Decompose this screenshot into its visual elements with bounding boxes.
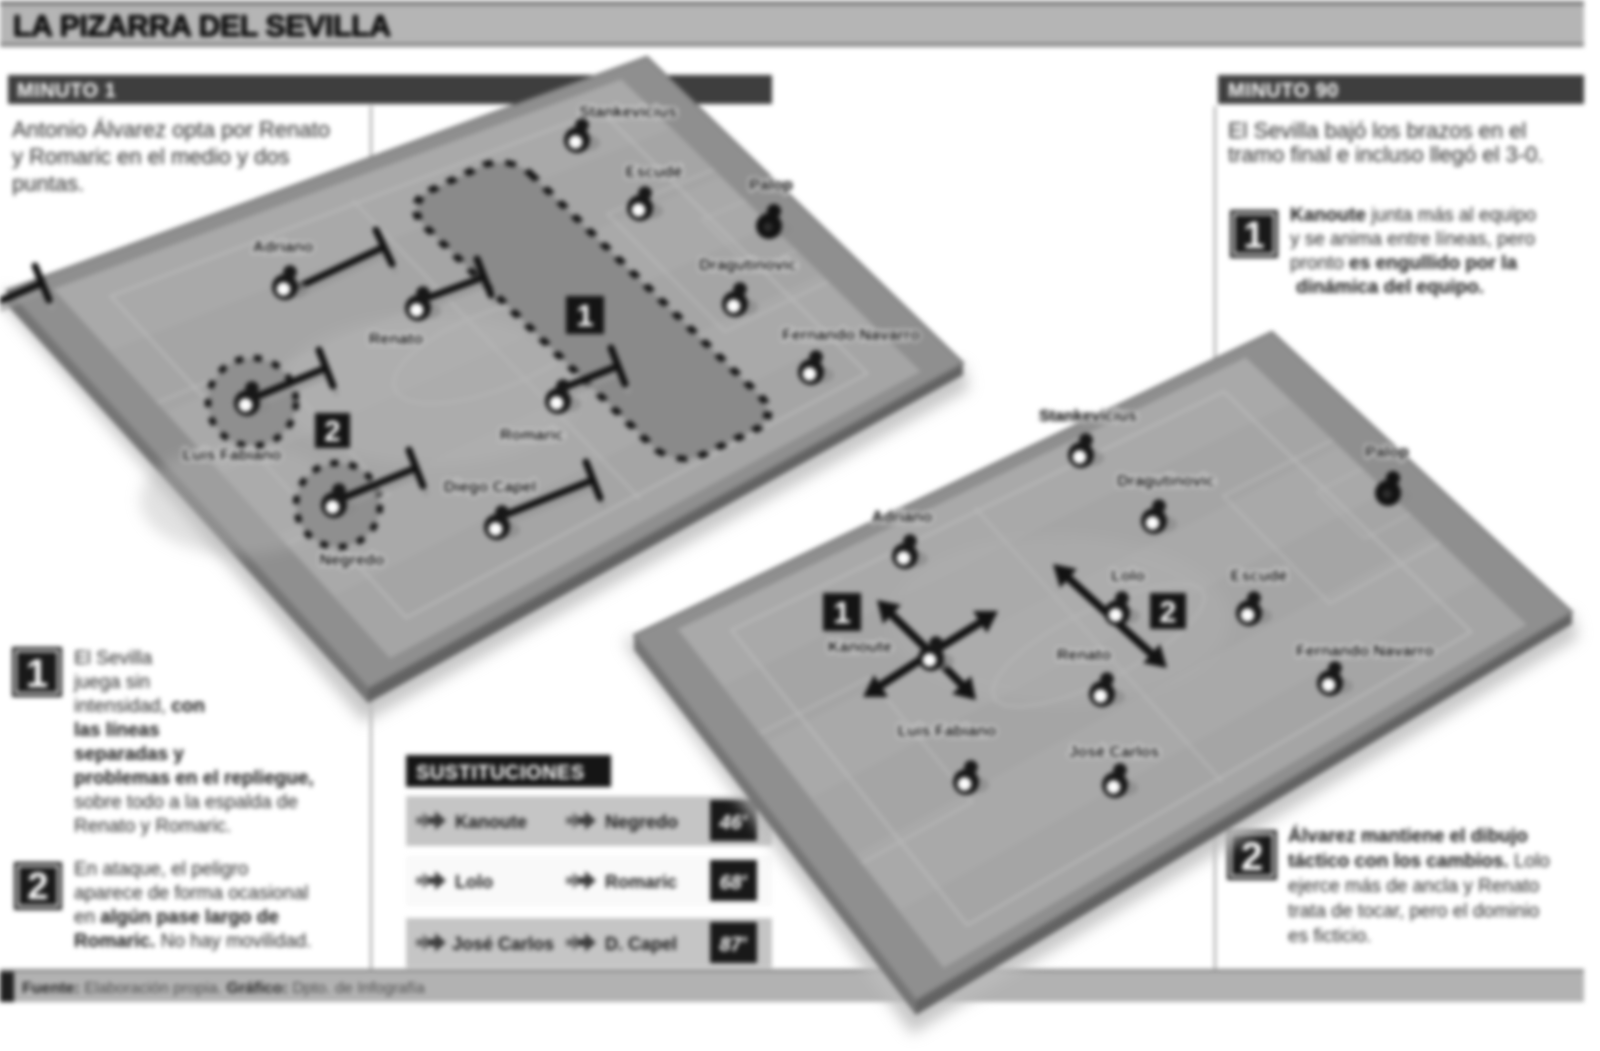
svg-text:68': 68' (719, 872, 747, 894)
svg-text:Adriano: Adriano (872, 509, 933, 526)
svg-text:87': 87' (719, 934, 747, 956)
svg-text:Kanoute junta más al equipo: Kanoute junta más al equipo (1290, 205, 1536, 226)
svg-text:En ataque, el peligro: En ataque, el peligro (74, 859, 248, 880)
svg-text:Negredo: Negredo (605, 812, 678, 832)
svg-text:Dragutinovic: Dragutinovic (1117, 473, 1215, 490)
svg-text:1: 1 (26, 652, 48, 696)
svg-text:Dragutinovic: Dragutinovic (699, 257, 797, 274)
svg-text:MINUTO 90: MINUTO 90 (1228, 80, 1339, 102)
svg-text:Kanoute: Kanoute (455, 812, 527, 832)
svg-text:José Carlos: José Carlos (452, 934, 554, 954)
svg-text:Fernando Navarro: Fernando Navarro (1296, 643, 1434, 660)
svg-text:Romaric: Romaric (500, 427, 564, 444)
svg-text:2: 2 (324, 416, 340, 448)
svg-text:en algún pase largo de: en algún pase largo de (74, 907, 279, 928)
svg-text:dinámica del equipo.: dinámica del equipo. (1296, 277, 1484, 298)
svg-text:es ficticio.: es ficticio. (1288, 926, 1371, 947)
svg-text:problemas en el repliegue,: problemas en el repliegue, (74, 768, 314, 789)
svg-text:Adriano: Adriano (253, 239, 314, 256)
svg-text:46': 46' (718, 812, 747, 834)
svg-text:Lolo: Lolo (1111, 568, 1145, 585)
svg-text:Palop: Palop (1365, 444, 1409, 461)
svg-text:tramo final e incluso llegó el: tramo final e incluso llegó el 3-0. (1228, 142, 1544, 167)
svg-text:sobre todo a la espalda de: sobre todo a la espalda de (74, 792, 298, 813)
svg-text:1: 1 (1243, 215, 1264, 257)
svg-text:ejerce más de ancla y Renato: ejerce más de ancla y Renato (1288, 876, 1539, 897)
svg-text:2: 2 (1160, 596, 1177, 629)
svg-text:Diego Capel: Diego Capel (444, 479, 536, 496)
svg-text:SUSTITUCIONES: SUSTITUCIONES (416, 762, 585, 784)
svg-text:Romaric: Romaric (605, 872, 677, 892)
svg-text:MINUTO 1: MINUTO 1 (17, 80, 116, 102)
svg-text:LA PIZARRA DEL SEVILLA: LA PIZARRA DEL SEVILLA (13, 10, 391, 43)
svg-text:Álvarez mantiene el dibujo: Álvarez mantiene el dibujo (1288, 825, 1528, 847)
svg-text:Lolo: Lolo (455, 872, 493, 892)
svg-text:juega sin: juega sin (73, 672, 150, 693)
svg-text:El Sevilla: El Sevilla (74, 648, 153, 669)
svg-text:pronto es engullido por la: pronto es engullido por la (1290, 253, 1517, 274)
svg-text:Negredo: Negredo (320, 552, 385, 569)
svg-text:José Carlos: José Carlos (1069, 744, 1160, 761)
svg-text:intensidad, con: intensidad, con (74, 696, 205, 717)
svg-text:Renato: Renato (369, 331, 423, 348)
svg-text:Romaric. No hay movilidad.: Romaric. No hay movilidad. (74, 931, 312, 952)
svg-text:y Romaric en el medio y dos: y Romaric en el medio y dos (12, 144, 290, 169)
svg-text:Stankevicius: Stankevicius (579, 104, 677, 121)
svg-text:Renato y Romaric.: Renato y Romaric. (74, 816, 231, 837)
svg-text:táctico con los cambios. Lolo: táctico con los cambios. Lolo (1288, 851, 1550, 872)
svg-text:El Sevilla bajó los brazos en: El Sevilla bajó los brazos en el (1228, 118, 1526, 143)
svg-text:2: 2 (27, 866, 48, 908)
svg-text:las líneas: las líneas (74, 720, 160, 741)
svg-text:2: 2 (1241, 835, 1263, 879)
svg-text:Escudé: Escudé (1231, 568, 1288, 585)
svg-text:Luis Fabiano: Luis Fabiano (183, 447, 282, 464)
svg-text:puntas.: puntas. (12, 171, 84, 196)
svg-text:1: 1 (833, 595, 850, 630)
svg-text:Fuente: Elaboración propia. Gr: Fuente: Elaboración propia. Gráfico: Dpt… (22, 980, 425, 997)
svg-text:1: 1 (576, 298, 593, 333)
svg-text:separadas y: separadas y (74, 744, 184, 765)
svg-text:Fernando Navarro: Fernando Navarro (782, 327, 920, 344)
svg-text:Kanoute: Kanoute (828, 639, 892, 656)
svg-text:y se anima entre líneas, pero: y se anima entre líneas, pero (1290, 229, 1535, 250)
svg-text:Escudé: Escudé (626, 164, 683, 181)
svg-text:Renato: Renato (1057, 647, 1111, 664)
svg-text:Luis Fabiano: Luis Fabiano (898, 723, 997, 740)
svg-text:aparece de forma ocasional: aparece de forma ocasional (74, 883, 308, 904)
svg-text:Stankevicius: Stankevicius (1039, 408, 1137, 425)
svg-text:Antonio Álvarez opta por Renat: Antonio Álvarez opta por Renato (12, 117, 330, 142)
svg-text:D. Capel: D. Capel (605, 934, 677, 954)
svg-text:trata de tocar, pero el domini: trata de tocar, pero el dominio (1288, 901, 1539, 922)
svg-text:Palop: Palop (749, 177, 793, 194)
